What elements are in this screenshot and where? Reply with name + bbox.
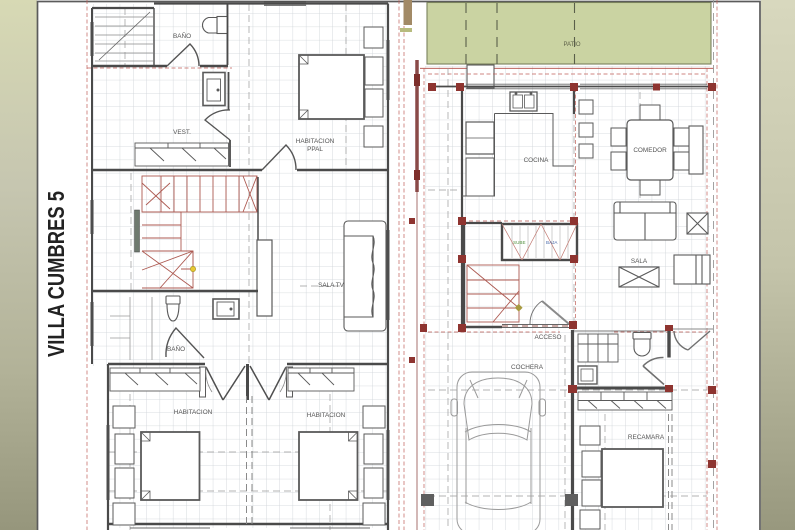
svg-text:COMEDOR: COMEDOR: [633, 147, 667, 154]
svg-text:HABITACION: HABITACION: [307, 412, 346, 419]
svg-text:RECAMARA: RECAMARA: [628, 434, 665, 441]
svg-text:SALA TV: SALA TV: [318, 282, 345, 289]
svg-text:BAJA: BAJA: [546, 240, 558, 245]
svg-text:COCINA: COCINA: [524, 157, 550, 164]
svg-text:SALA: SALA: [631, 258, 648, 265]
svg-text:HABITACION: HABITACION: [296, 138, 335, 145]
svg-text:PPAL: PPAL: [307, 146, 323, 153]
svg-text:ACCESO: ACCESO: [535, 334, 562, 341]
svg-text:BAÑO: BAÑO: [173, 31, 191, 40]
svg-text:VEST.: VEST.: [173, 129, 191, 136]
svg-text:VILLA CUMBRES 5: VILLA CUMBRES 5: [43, 191, 69, 357]
svg-text:PATIO: PATIO: [563, 42, 580, 48]
svg-text:BAÑO: BAÑO: [167, 344, 185, 353]
svg-text:SUBE: SUBE: [513, 240, 526, 245]
svg-text:HABITACION: HABITACION: [174, 409, 213, 416]
svg-text:COCHERA: COCHERA: [511, 364, 544, 371]
